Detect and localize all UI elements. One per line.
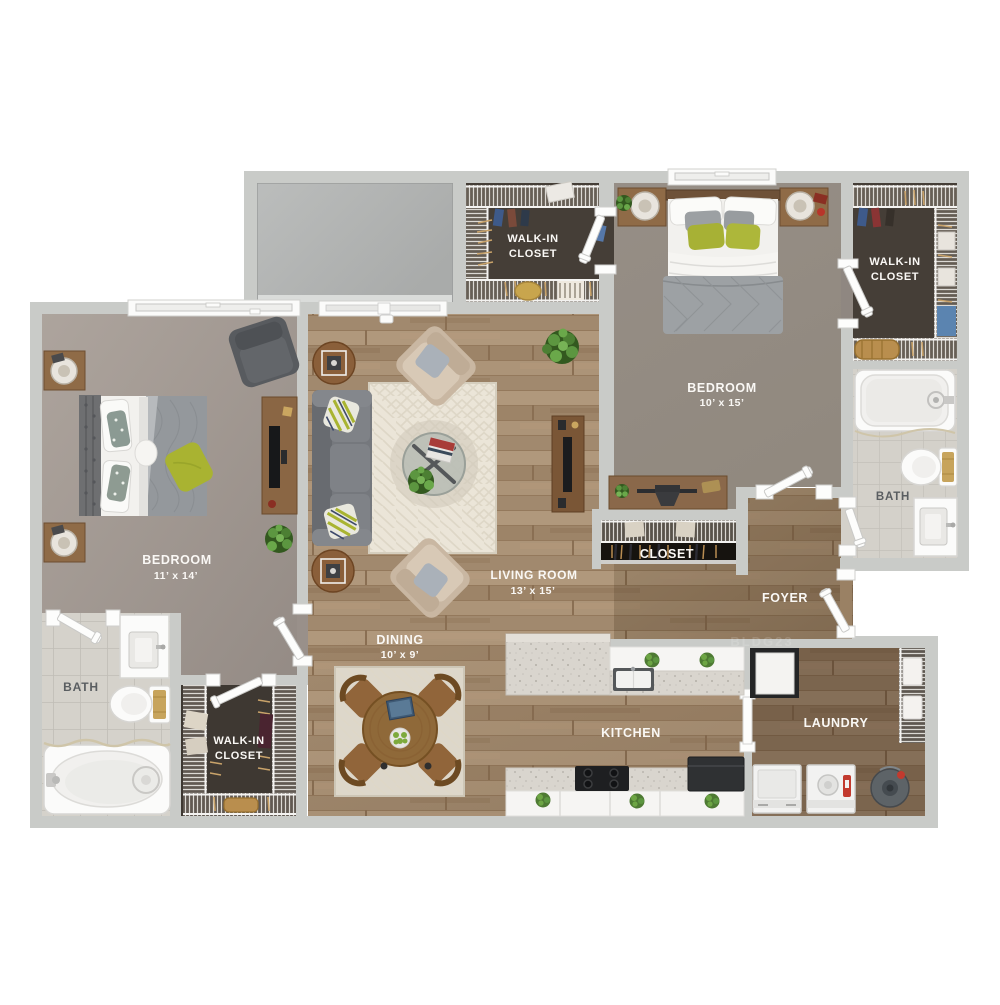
- svg-text:CLOSET: CLOSET: [215, 750, 263, 762]
- svg-text:BATH: BATH: [876, 491, 910, 503]
- svg-text:FOYER: FOYER: [762, 591, 808, 605]
- svg-text:DINING: DINING: [376, 633, 423, 647]
- svg-text:WALK-IN: WALK-IN: [507, 233, 558, 245]
- svg-text:LIVING ROOM: LIVING ROOM: [490, 568, 577, 582]
- svg-text:LAUNDRY: LAUNDRY: [804, 716, 869, 730]
- svg-text:WALK-IN: WALK-IN: [213, 735, 264, 747]
- svg-text:10’ x 9’: 10’ x 9’: [381, 649, 419, 661]
- svg-text:11’ x 14’: 11’ x 14’: [154, 570, 198, 582]
- svg-text:BEDROOM: BEDROOM: [687, 381, 756, 395]
- svg-text:CLOSET: CLOSET: [640, 547, 694, 561]
- svg-text:BLDG23: BLDG23: [730, 634, 793, 649]
- svg-text:BATH: BATH: [63, 680, 99, 694]
- svg-text:KITCHEN: KITCHEN: [601, 726, 661, 740]
- svg-text:CLOSET: CLOSET: [509, 248, 557, 260]
- svg-text:CLOSET: CLOSET: [871, 271, 919, 283]
- svg-text:10’ x 15’: 10’ x 15’: [700, 397, 745, 409]
- svg-text:BEDROOM: BEDROOM: [142, 553, 211, 567]
- svg-text:WALK-IN: WALK-IN: [869, 256, 920, 268]
- svg-text:13’ x 15’: 13’ x 15’: [511, 585, 556, 597]
